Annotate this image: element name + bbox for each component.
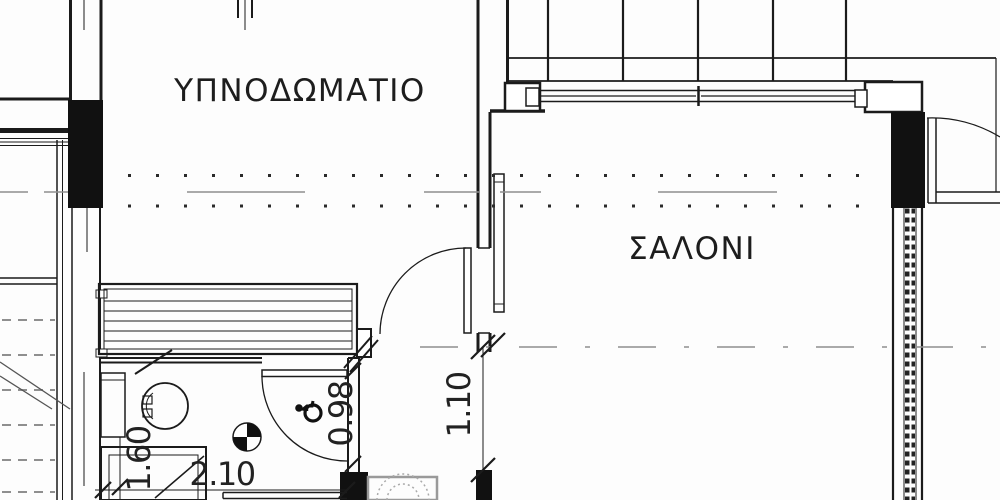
quadrant-datum-marker bbox=[233, 423, 261, 451]
dim-bath-door: 0.98 bbox=[322, 381, 360, 446]
concrete-column-bath bbox=[340, 472, 368, 500]
bedroom-door-leaf bbox=[464, 248, 471, 333]
bathroom-door-leaf bbox=[262, 370, 347, 377]
window-cap-right bbox=[855, 90, 867, 107]
dim-bath-depth: 1.60 bbox=[120, 426, 158, 491]
floor-plan: ΥΠΝΟΔΩΜΑΤΙΟ ΣΑΛΟΝΙ 2.10 1.60 0.98 1.10 bbox=[0, 0, 1000, 500]
window-jamb-right bbox=[865, 82, 922, 112]
window-cap-left bbox=[526, 88, 539, 106]
living-room-label: ΣΑΛΟΝΙ bbox=[628, 231, 756, 267]
paper-background bbox=[0, 0, 1000, 500]
dim-passage: 1.10 bbox=[440, 372, 478, 437]
door-jamb-block bbox=[357, 329, 371, 357]
wall-insulation-hatch bbox=[905, 208, 915, 500]
floor-plan-drawing: ΥΠΝΟΔΩΜΑΤΙΟ ΣΑΛΟΝΙ 2.10 1.60 0.98 1.10 bbox=[0, 0, 1000, 500]
concrete-column-west bbox=[68, 100, 103, 208]
dim-bath-width: 2.10 bbox=[189, 455, 254, 493]
concrete-column-east bbox=[891, 112, 925, 208]
bedroom-label: ΥΠΝΟΔΩΜΑΤΙΟ bbox=[173, 73, 426, 109]
